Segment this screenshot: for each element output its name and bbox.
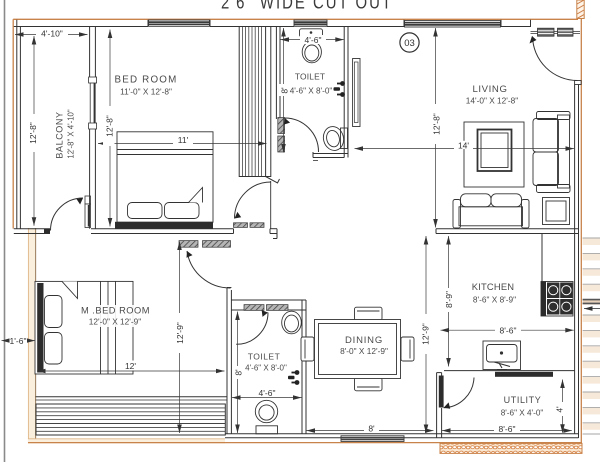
svg-text:8': 8' [280, 87, 290, 94]
svg-text:4'-10": 4'-10" [41, 29, 63, 39]
svg-text:12'-9": 12'-9" [175, 322, 185, 344]
svg-text:8'-6" X 8'-9": 8'-6" X 8'-9" [473, 295, 516, 305]
svg-text:TOILET: TOILET [295, 72, 325, 82]
svg-text:4'-6": 4'-6" [305, 35, 322, 45]
svg-text:12'-8" X 4'-10": 12'-8" X 4'-10" [67, 109, 76, 158]
svg-text:4'-6" X 8'-0": 4'-6" X 8'-0" [245, 364, 287, 373]
svg-text:14': 14' [458, 140, 469, 150]
svg-text:4'-6" X 8'-0": 4'-6" X 8'-0" [290, 87, 333, 96]
svg-text:12'-8": 12'-8" [432, 113, 442, 135]
svg-text:TOILET: TOILET [248, 352, 281, 362]
svg-text:8': 8' [368, 424, 375, 434]
svg-text:12'-9": 12'-9" [421, 323, 431, 345]
svg-text:LIVING: LIVING [472, 84, 507, 95]
svg-text:DINING: DINING [345, 335, 383, 346]
svg-text:2'6" WIDE CUT OUT: 2'6" WIDE CUT OUT [221, 0, 393, 13]
svg-text:03: 03 [404, 38, 415, 49]
svg-text:14'-0" X 12'-8": 14'-0" X 12'-8" [466, 96, 518, 106]
svg-text:KITCHEN: KITCHEN [472, 281, 515, 292]
svg-text:4': 4' [555, 406, 565, 413]
svg-text:8'-6" X 4'-0": 8'-6" X 4'-0" [501, 409, 544, 418]
svg-text:8'-0" X 12'-9": 8'-0" X 12'-9" [340, 346, 388, 356]
svg-text:BED ROOM: BED ROOM [115, 75, 178, 86]
svg-text:12'-8": 12'-8" [28, 122, 38, 144]
svg-text:UTILITY: UTILITY [504, 395, 542, 405]
svg-text:1'-6": 1'-6" [10, 336, 27, 346]
svg-text:11': 11' [178, 135, 189, 145]
svg-text:BALCONY: BALCONY [55, 111, 65, 158]
svg-text:8'-9": 8'-9" [444, 291, 454, 308]
svg-text:11'-0" X 12'-8": 11'-0" X 12'-8" [120, 87, 172, 97]
svg-text:12'-0" X 12'-9": 12'-0" X 12'-9" [89, 317, 141, 327]
svg-text:M .BED ROOM: M .BED ROOM [81, 306, 150, 316]
svg-text:8'-6": 8'-6" [500, 326, 517, 336]
svg-text:12': 12' [125, 361, 136, 371]
svg-text:12'-8": 12'-8" [105, 115, 115, 137]
svg-text:8'-6": 8'-6" [499, 424, 516, 434]
svg-text:8': 8' [234, 369, 244, 376]
svg-text:4'-6": 4'-6" [259, 388, 276, 398]
